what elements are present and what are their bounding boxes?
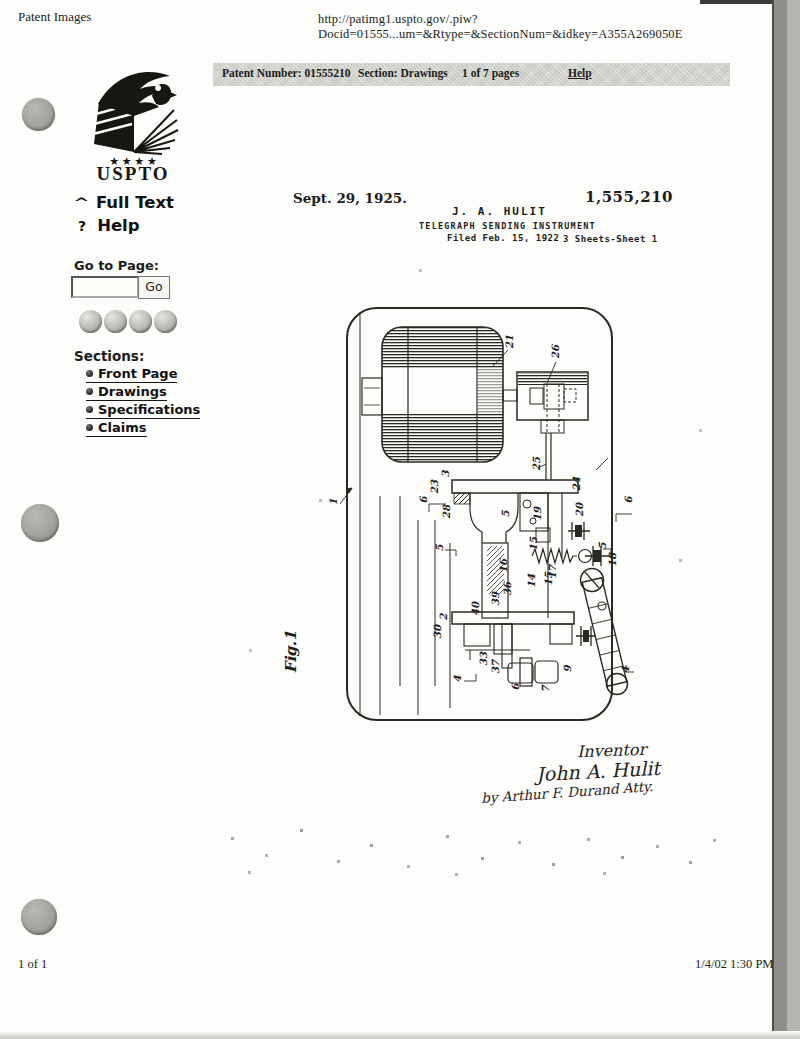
inventor-name-header: J. A. HULIT: [452, 205, 547, 218]
full-text-label: Full Text: [96, 193, 174, 212]
page-navigation-buttons: [79, 310, 177, 333]
sections-heading: Sections:: [74, 348, 144, 364]
scan-edge-bottom: [0, 1031, 800, 1039]
part-number-20: 20: [574, 502, 585, 517]
logo-wordmark: USPTO: [96, 163, 169, 184]
part-number-4: 4: [620, 665, 631, 673]
sidebar-item-claims[interactable]: Claims: [86, 420, 147, 437]
part-number-36: 36: [502, 581, 513, 596]
part-number-23: 23: [429, 479, 440, 494]
bullet-icon: [86, 406, 93, 413]
patent-info-bar: Patent Number: 01555210 Section: Drawing…: [213, 63, 730, 86]
nav-button-3[interactable]: [129, 310, 152, 333]
print-page-count: 1 of 1: [18, 957, 47, 972]
part-number-9: 9: [562, 664, 573, 672]
pages-text: 1 of 7 pages: [462, 67, 519, 79]
uspto-logo: ★ ★ ★ ★ USPTO: [86, 66, 180, 184]
page-url: http://patimg1.uspto.gov/.piw?Docid=0155…: [318, 12, 800, 42]
part-number-24: 24: [571, 476, 582, 491]
part-number-28: 28: [441, 504, 452, 519]
part-number-4: 4: [452, 674, 463, 682]
part-number-39: 39: [490, 591, 501, 606]
part-number-21: 21: [504, 335, 515, 349]
part-number-6: 6: [510, 682, 521, 690]
figure-caption: Fig.1: [282, 631, 300, 674]
upper-plate: [452, 480, 578, 493]
patent-number-text: Patent Number: 01555210: [222, 67, 350, 79]
front-page-label: Front Page: [98, 366, 177, 381]
nav-button-1[interactable]: [79, 310, 102, 333]
part-number-2: 2: [438, 612, 449, 620]
sidebar-item-specifications[interactable]: Specifications: [86, 402, 200, 419]
part-number-19: 19: [532, 506, 543, 521]
central-mechanism: [470, 493, 562, 618]
sidebar-item-front-page[interactable]: Front Page: [86, 366, 177, 383]
nav-button-4[interactable]: [154, 310, 177, 333]
part-number-7: 7: [540, 684, 551, 692]
sheet-count: 3 Sheets-Sheet 1: [563, 234, 658, 244]
help-label: Help: [97, 216, 139, 235]
goto-page-input[interactable]: [71, 276, 139, 298]
part-number-25: 25: [531, 456, 542, 471]
full-text-link[interactable]: ^ Full Text: [76, 193, 174, 212]
goto-page-label: Go to Page:: [74, 258, 159, 273]
sidebar-help-link[interactable]: ? Help: [78, 216, 140, 235]
part-number-37: 37: [490, 659, 501, 674]
patent-image-viewer-page: Patent Images http://patimg1.uspto.gov/.…: [0, 0, 800, 1039]
window-title: Patent Images: [18, 9, 91, 25]
punch-hole: [21, 504, 59, 542]
gear-housing: [517, 372, 588, 480]
base-lines: [380, 496, 450, 715]
patent-figure: Fig.1 2126251323628524195201516171856141…: [280, 288, 660, 733]
part-number-30: 30: [432, 624, 443, 639]
part-number-14: 14: [526, 573, 537, 588]
part-number-5: 5: [500, 509, 511, 517]
section-text: Section: Drawings: [358, 67, 448, 79]
nav-button-2[interactable]: [104, 310, 127, 333]
motor: [362, 327, 503, 462]
print-timestamp: 1/4/02 1:30 PM: [695, 957, 774, 972]
patent-date: Sept. 29, 1925.: [293, 190, 407, 206]
patent-title: TELEGRAPH SENDING INSTRUMENT: [419, 221, 596, 231]
go-button[interactable]: Go: [138, 276, 170, 299]
part-number-16: 16: [498, 558, 509, 573]
part-number-33: 33: [478, 651, 489, 666]
punch-hole: [21, 899, 57, 935]
part-number-6: 6: [623, 495, 634, 503]
part-number-5: 5: [597, 541, 608, 549]
part-number-1: 1: [328, 498, 339, 505]
patent-number-header: 1,555,210: [585, 188, 673, 206]
bullet-icon: [86, 388, 93, 395]
part-number-3: 3: [440, 469, 451, 477]
filed-date: Filed Feb. 15, 1922: [447, 233, 559, 243]
bullet-icon: [86, 370, 93, 377]
punch-hole: [22, 98, 55, 131]
drawings-label: Drawings: [98, 384, 167, 399]
part-number-15: 15: [543, 571, 554, 586]
part-number-40: 40: [470, 601, 481, 616]
chevron-up-icon: ^: [73, 195, 89, 210]
part-number-15: 15: [528, 536, 539, 551]
scan-edge-top: [700, 0, 772, 4]
question-icon: ?: [78, 218, 86, 234]
specifications-label: Specifications: [98, 402, 200, 417]
part-number-5: 5: [434, 543, 445, 551]
lower-assembly: [452, 612, 596, 686]
sidebar-item-drawings[interactable]: Drawings: [86, 384, 167, 401]
part-number-6: 6: [418, 495, 429, 503]
claims-label: Claims: [98, 420, 147, 435]
bullet-icon: [86, 424, 93, 431]
part-number-26: 26: [550, 344, 561, 359]
part-number-18: 18: [607, 552, 618, 567]
scan-edge-right: [772, 0, 800, 1039]
help-link[interactable]: Help: [568, 67, 592, 79]
uspto-eagle-icon: [93, 72, 178, 154]
scan-noise: [0, 0, 1, 1]
